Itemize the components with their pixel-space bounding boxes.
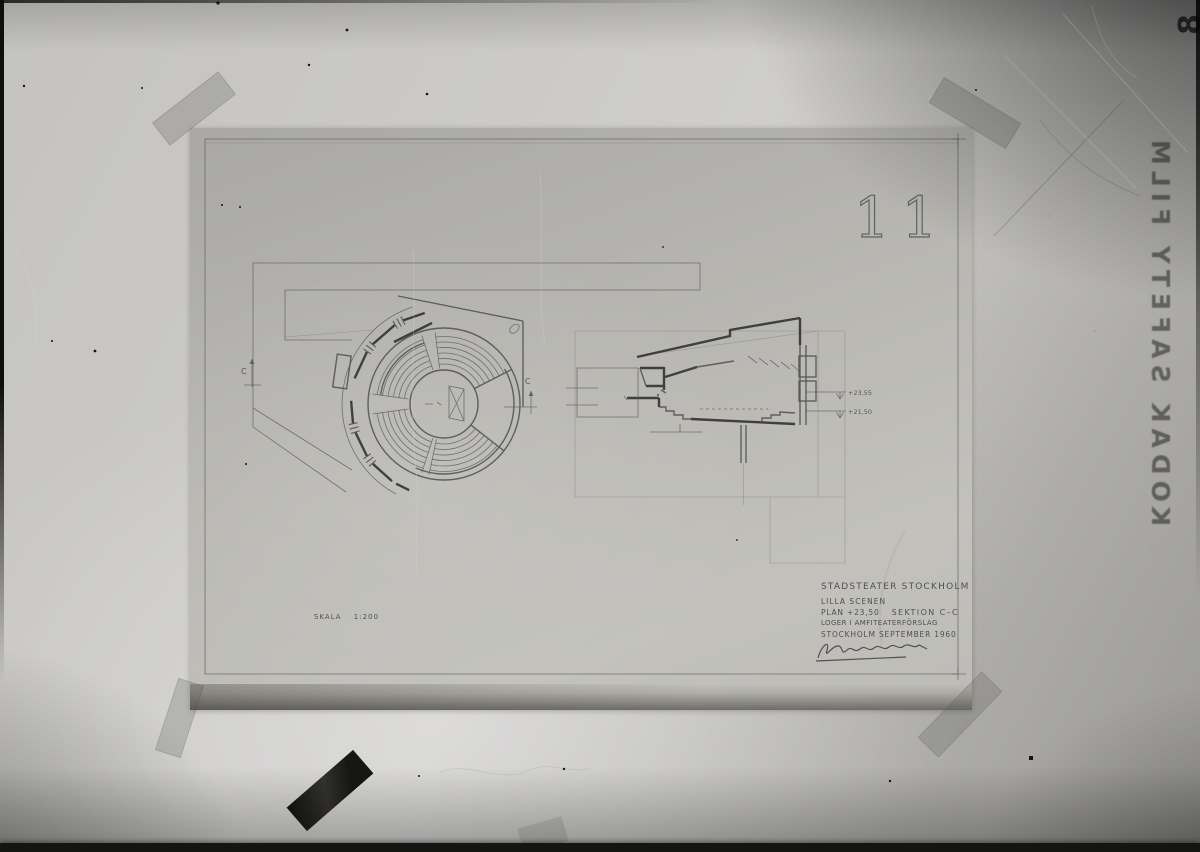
film-frame-edge-top [0,0,720,3]
film-frame-edge-bottom [0,843,1200,852]
dust-specks [23,1,1153,782]
photo-defects: 8 [0,0,1200,852]
film-frame-edge-right [1196,0,1200,596]
film-frame-edge-left [0,0,4,852]
scratches [8,6,1187,775]
photographed-drawing: 11 [0,0,1200,852]
